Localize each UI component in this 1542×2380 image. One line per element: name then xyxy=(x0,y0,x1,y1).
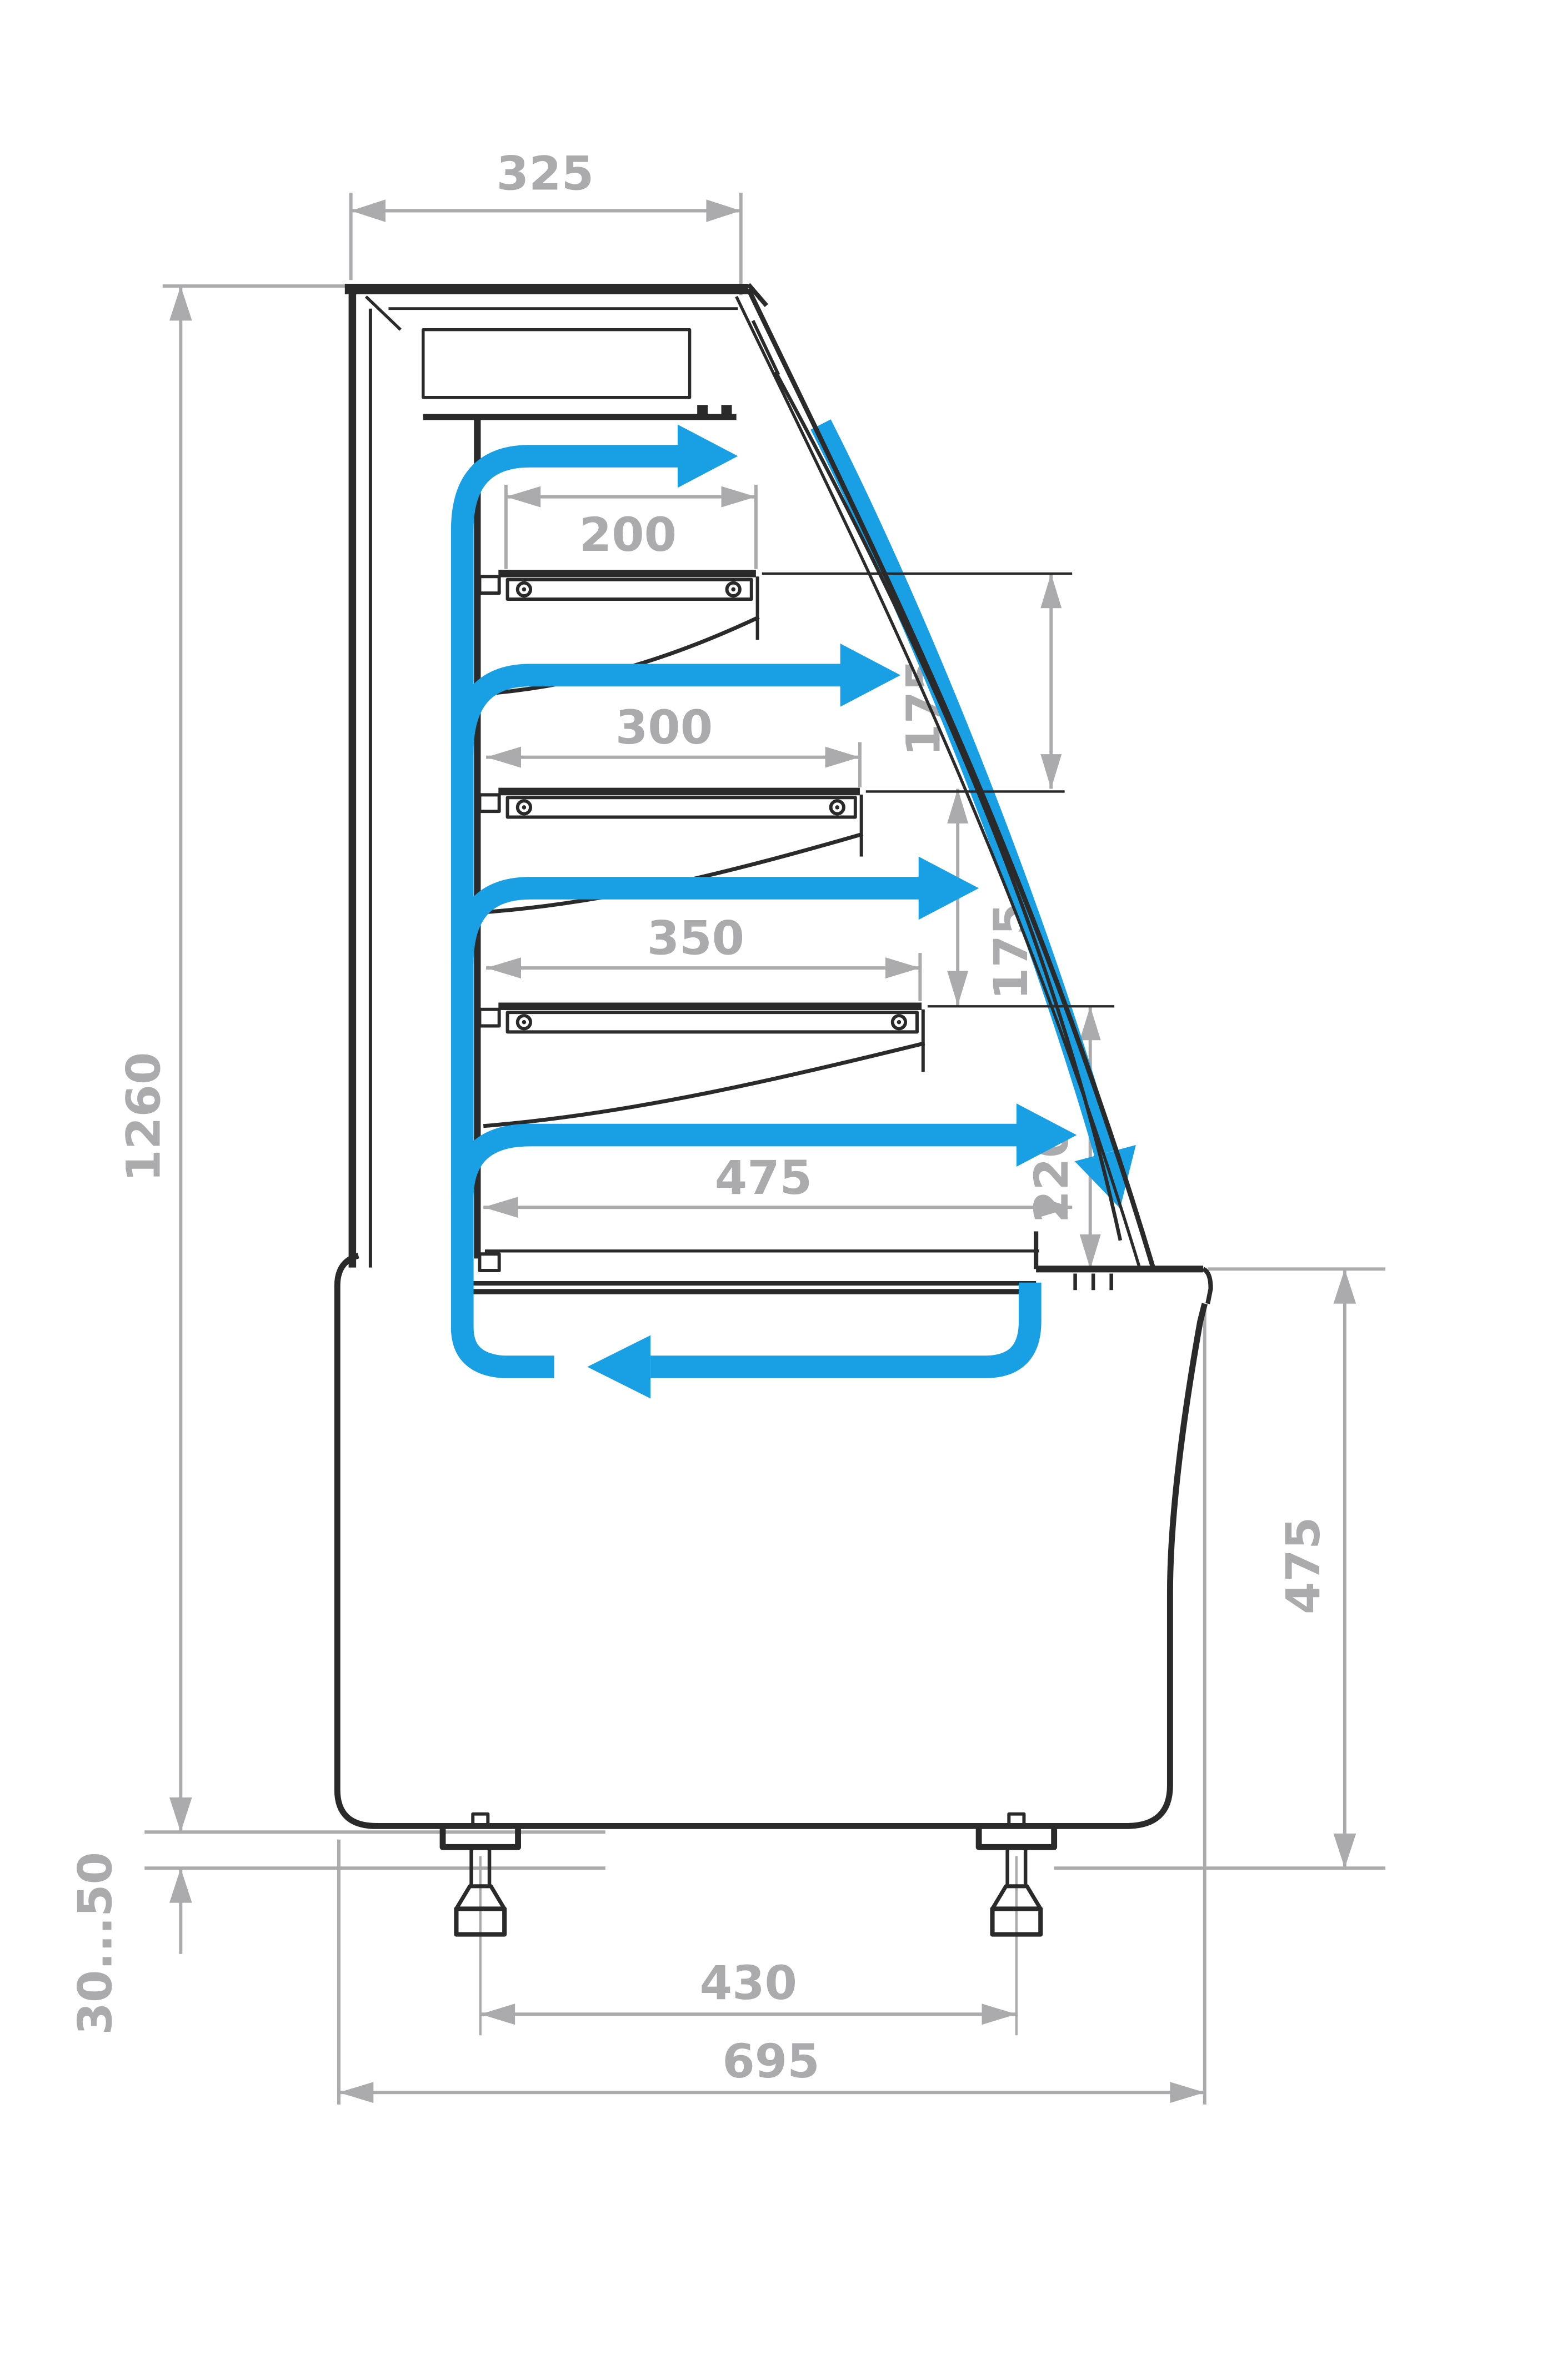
shelf-1-hook xyxy=(479,576,499,593)
dim-label-695: 695 xyxy=(722,2034,819,2088)
dimension-475-base: 475 xyxy=(1054,1269,1385,1868)
dimension-30-50: 30...50 xyxy=(68,1832,605,2035)
shelf-2-hook xyxy=(479,795,499,811)
airflow-arrow-shelf-2 xyxy=(919,857,979,920)
drawing-page: 325 1260 30...50 200 xyxy=(0,0,1542,2380)
dim-label-325: 325 xyxy=(497,147,594,201)
dimension-325: 325 xyxy=(351,147,741,295)
front-bumper xyxy=(1203,1269,1211,1303)
dim-label-200: 200 xyxy=(579,508,677,562)
display-deck xyxy=(458,1251,1039,1292)
air-outlet-slot-2 xyxy=(722,405,732,418)
airflow-arrow-shelf-1 xyxy=(840,644,900,707)
dim-label-430: 430 xyxy=(700,1956,797,2010)
leg-left-bracket xyxy=(443,1826,518,1847)
shelf-2-fascia xyxy=(508,797,855,817)
air-outlet-slot-1 xyxy=(697,405,708,418)
dimension-430: 430 xyxy=(480,1856,1017,2036)
leg-right-bracket xyxy=(979,1826,1054,1847)
dimension-1260: 1260 xyxy=(116,286,349,1832)
dimension-200: 200 xyxy=(506,485,756,569)
front-sill xyxy=(1036,1232,1210,1304)
dim-label-30-50: 30...50 xyxy=(68,1852,123,2035)
dim-label-350: 350 xyxy=(647,911,744,966)
airflow-diagram: 325 1260 30...50 200 xyxy=(0,0,1542,2380)
shelf-1-fascia xyxy=(508,580,752,599)
shelf-2-support-curve xyxy=(483,834,863,912)
dimension-300: 300 xyxy=(486,700,860,787)
shelf-3-support-curve xyxy=(483,1043,924,1126)
airflow-arrow-return xyxy=(587,1335,650,1399)
return-grille-slots xyxy=(1075,1273,1112,1290)
dimension-475-well: 475 xyxy=(483,1151,1072,1218)
airflow-return-to-riser xyxy=(462,1328,554,1367)
shelf-3-fascia xyxy=(508,1012,917,1032)
dim-label-475-base: 475 xyxy=(1276,1517,1330,1614)
glass-inner xyxy=(737,297,1140,1269)
dim-label-300: 300 xyxy=(615,700,713,755)
airflow-return-duct xyxy=(650,1283,1030,1367)
airflow-arrow-top xyxy=(678,424,738,488)
dim-label-475-well: 475 xyxy=(715,1151,812,1205)
dim-label-1260: 1260 xyxy=(116,1052,171,1182)
dimension-350: 350 xyxy=(486,911,920,1001)
deck-hook xyxy=(479,1254,499,1271)
canopy-box xyxy=(423,330,690,398)
shelf-3-hook xyxy=(479,1010,499,1026)
front-channel-line xyxy=(775,372,1120,1241)
